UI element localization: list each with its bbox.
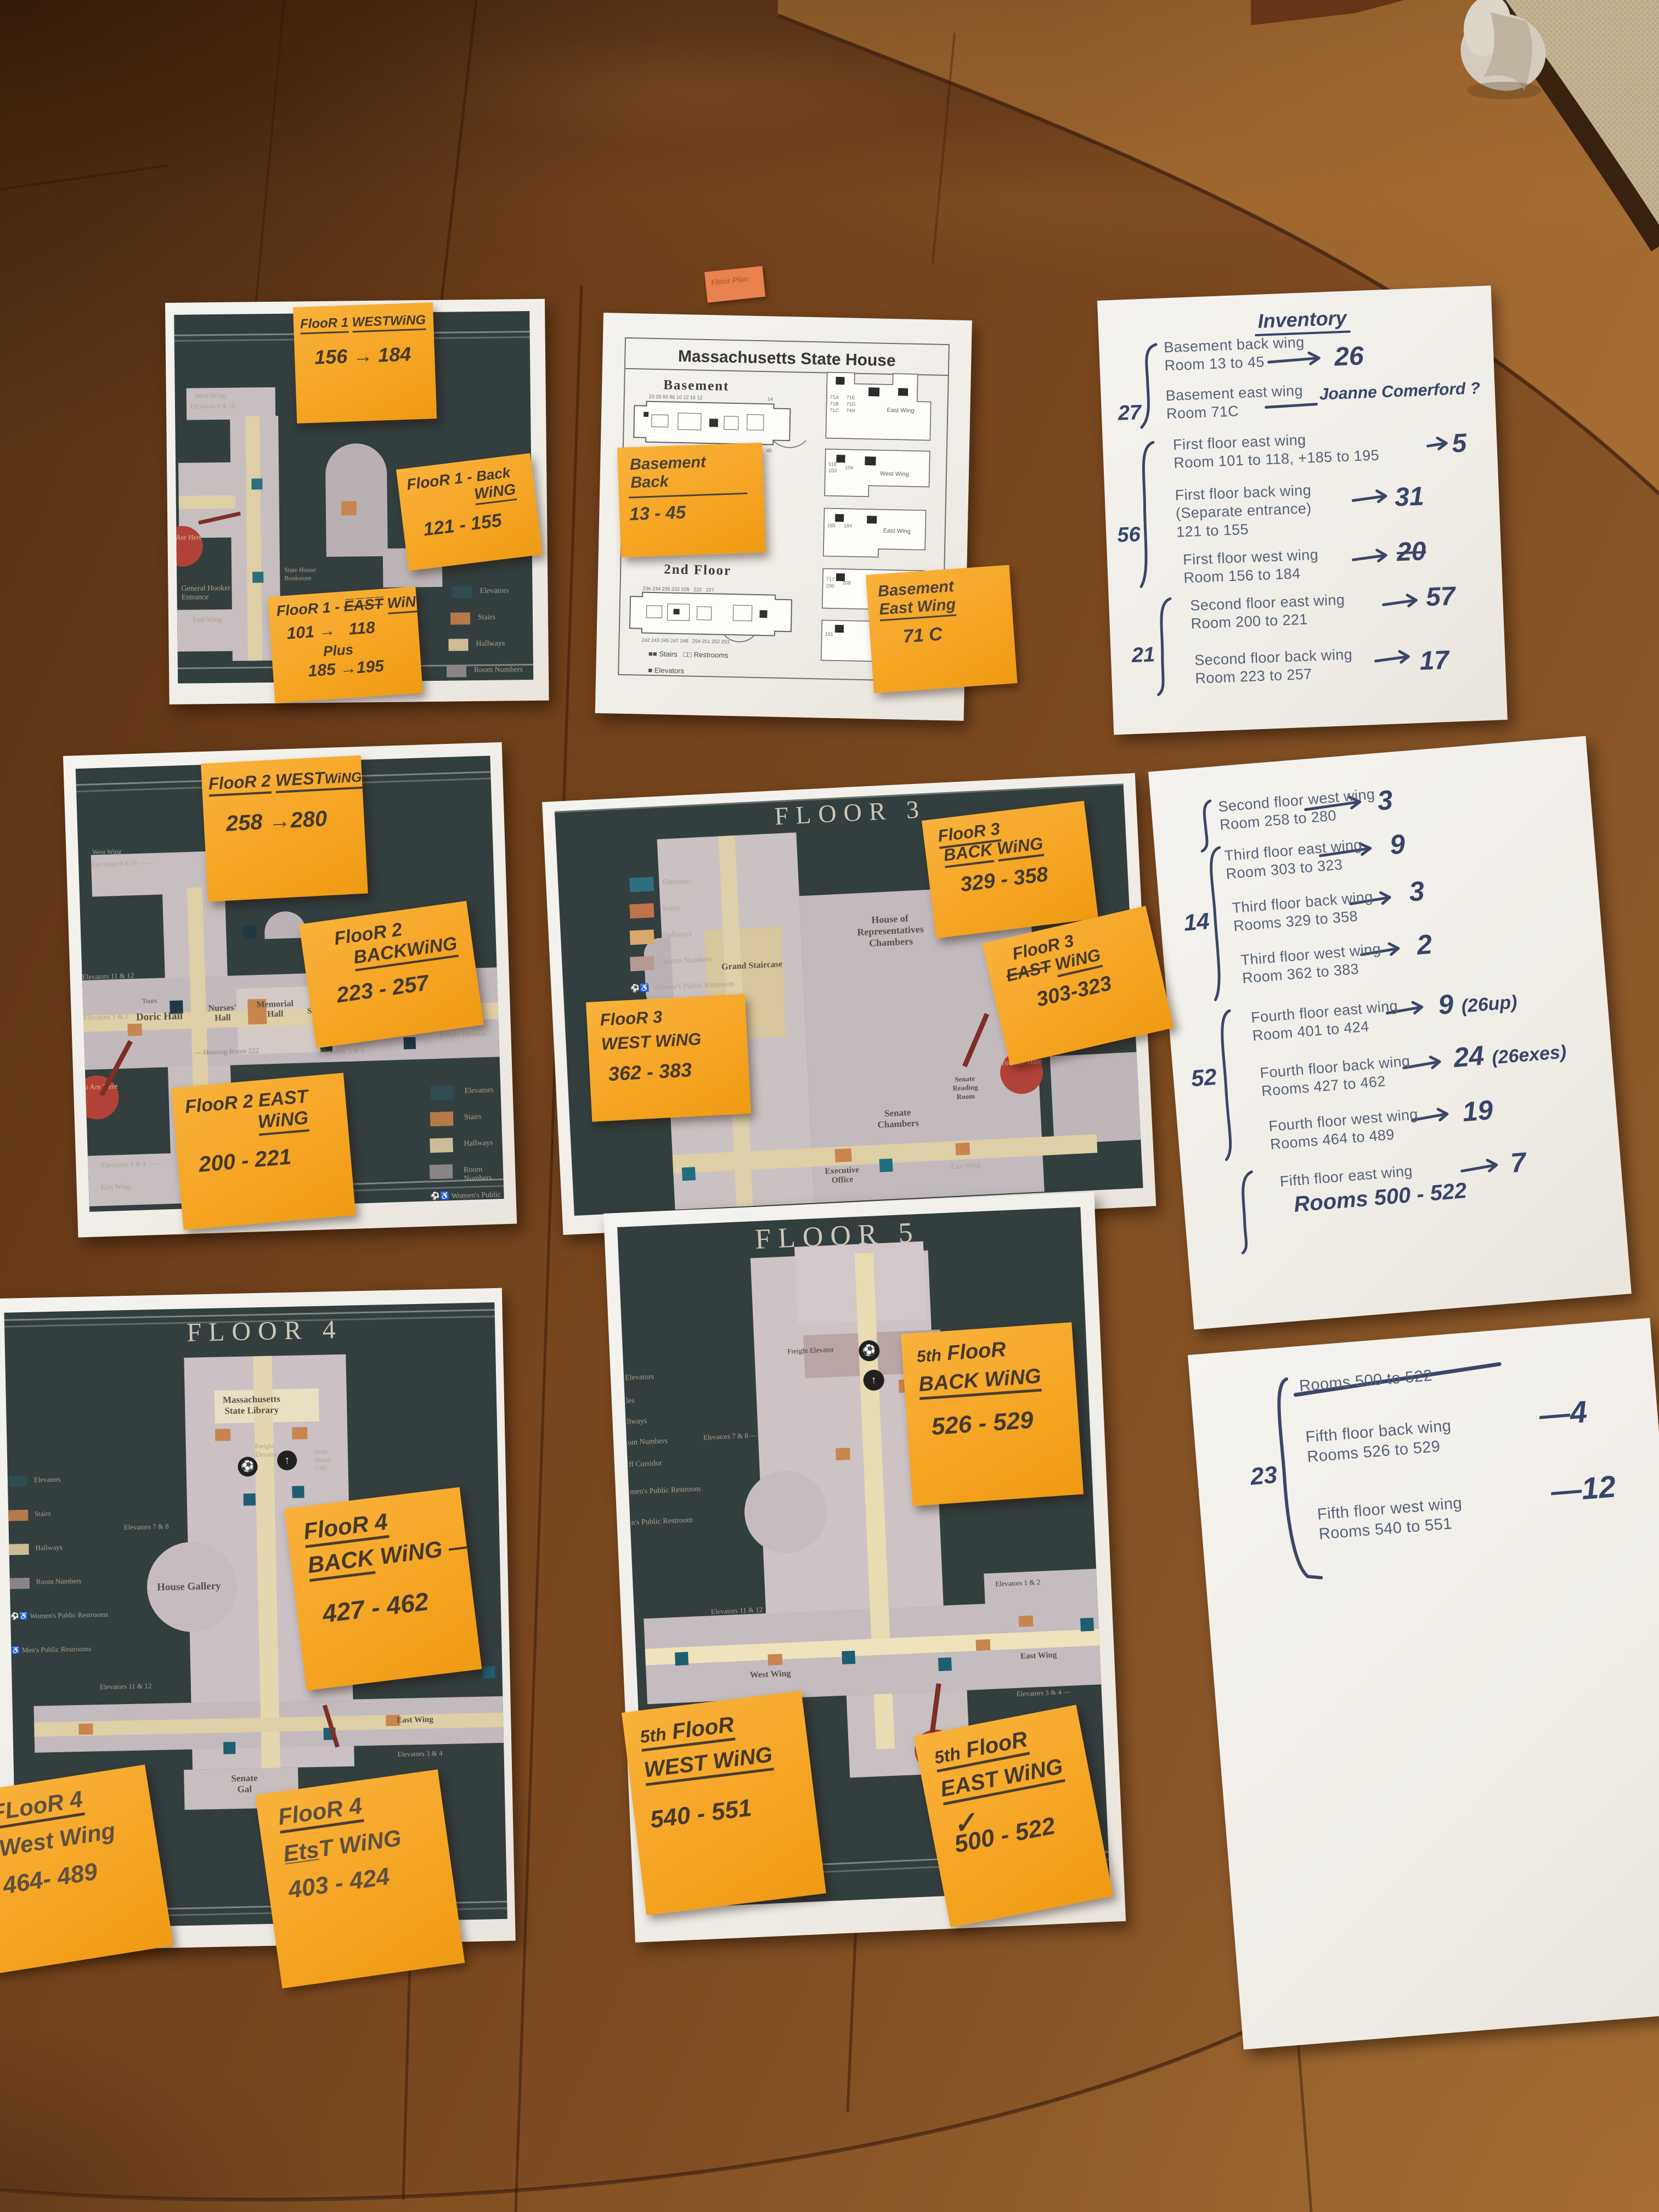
svg-text:151: 151: [825, 631, 833, 637]
svg-text:118: 118: [828, 461, 837, 467]
svg-text:184: 184: [844, 523, 852, 528]
svg-text:71A: 71A: [830, 394, 839, 400]
svg-text:East Wing: East Wing: [883, 528, 911, 535]
svg-text:71C: 71C: [830, 408, 839, 413]
svg-text:717: 717: [826, 577, 834, 582]
svg-text:71B: 71B: [830, 401, 839, 407]
svg-text:East Wing: East Wing: [887, 407, 914, 414]
svg-text:236 234 235 232 228 222 22: 236 234 235 232 228 222 227: [642, 586, 714, 593]
svg-text:200: 200: [826, 583, 834, 589]
svg-text:74H: 74H: [846, 408, 855, 413]
svg-text:208: 208: [843, 580, 851, 585]
svg-text:45: 45: [766, 448, 772, 453]
svg-text:103: 103: [828, 468, 837, 473]
svg-text:14: 14: [768, 396, 773, 402]
svg-text:185: 185: [827, 523, 836, 528]
svg-text:23 25 93 96 10 12 16 12: 23 25 93 96 10 12 16 12: [649, 394, 703, 400]
svg-text:242 243 245 247 248 254 251: 242 243 245 247 248 254 251 252 253: [641, 637, 729, 645]
svg-text:West Wing: West Wing: [880, 471, 909, 478]
svg-text:71G: 71G: [847, 401, 856, 407]
svg-text:71E: 71E: [847, 394, 855, 400]
svg-text:104: 104: [845, 465, 853, 470]
